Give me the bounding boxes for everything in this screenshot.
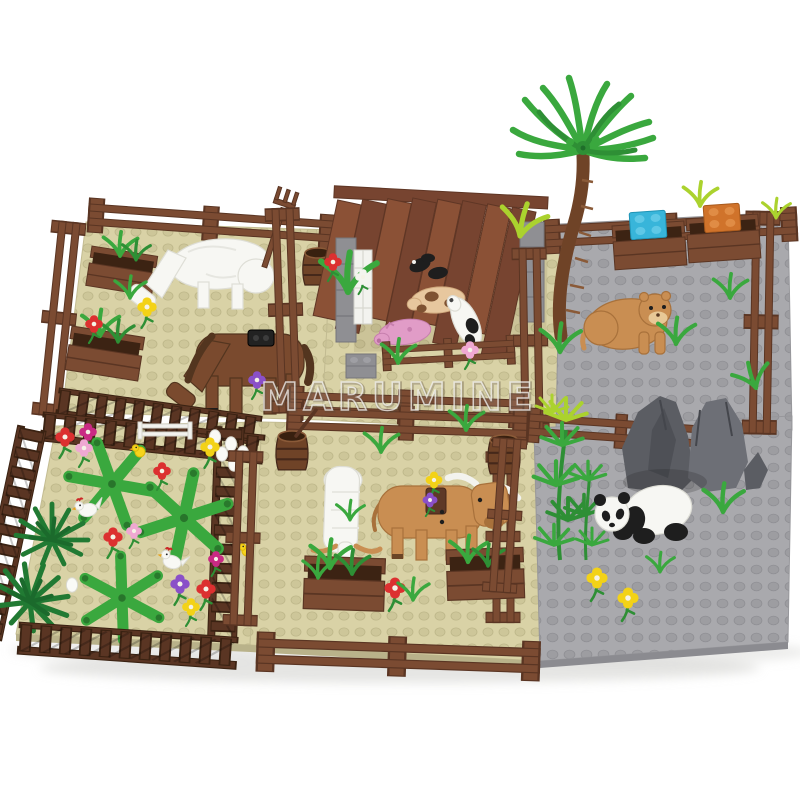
watermark-text: MARUMINE	[260, 375, 537, 419]
blue-brick	[629, 210, 667, 239]
barrel	[276, 431, 308, 470]
scene-svg: MARUMINE MARUMINE	[0, 0, 800, 800]
sprout-icon	[684, 182, 718, 206]
product-photo: MARUMINE MARUMINE	[0, 0, 800, 800]
orange-brick	[703, 203, 741, 232]
